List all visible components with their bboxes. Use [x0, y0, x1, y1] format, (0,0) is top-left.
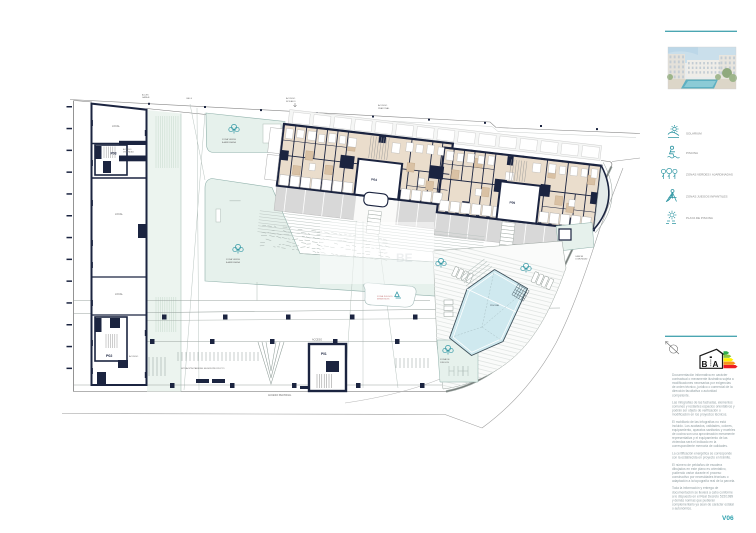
svg-text:ACCESO: ACCESO — [286, 97, 296, 100]
svg-text:ZONA VERDE: ZONA VERDE — [222, 138, 237, 141]
svg-text:ACCESO: ACCESO — [378, 104, 388, 107]
svg-text:modificación en los proyectos: modificación en los proyectos técnicos. — [672, 413, 727, 417]
svg-text:SOLARIUM: SOLARIUM — [686, 132, 702, 136]
svg-text:GARAJE: GARAJE — [142, 96, 150, 99]
svg-text:RODADO: RODADO — [286, 100, 296, 103]
svg-text:P02: P02 — [106, 354, 112, 358]
svg-text:ACCESO: ACCESO — [312, 339, 322, 342]
svg-text:adaptación a la topografía rea: adaptación a la topografía real de la pa… — [672, 479, 735, 483]
svg-text:PISCINA: PISCINA — [490, 304, 499, 307]
svg-text:INFANTILES: INFANTILES — [377, 298, 390, 301]
svg-text:AJARDINADA: AJARDINADA — [222, 141, 236, 144]
svg-text:ACCESO: ACCESO — [123, 148, 132, 151]
svg-text:PISCINA: PISCINA — [686, 151, 698, 155]
svg-text:P05: P05 — [509, 200, 515, 205]
svg-text:PLAYA DE PISCINA: PLAYA DE PISCINA — [686, 216, 713, 220]
svg-text:CALLE: CALLE — [186, 97, 193, 100]
svg-text:correspondiente memoria de cal: correspondiente memoria de calidades. — [672, 444, 728, 448]
svg-text:o autonómico.: o autonómico. — [672, 507, 692, 511]
svg-text:JUEGOS: JUEGOS — [440, 362, 450, 364]
svg-text:ZONAS VERDES I AJARDINADAS: ZONAS VERDES I AJARDINADAS — [686, 173, 733, 177]
svg-text:P03: P03 — [111, 152, 117, 156]
svg-text:ZONAS JUEGOS INFANTILES: ZONAS JUEGOS INFANTILES — [686, 195, 728, 199]
svg-text:V06: V06 — [722, 515, 734, 522]
svg-text:ZONA JUEGOS: ZONA JUEGOS — [377, 295, 393, 298]
svg-text:competente.: competente. — [672, 393, 690, 397]
svg-text:AJARDINADA: AJARDINADA — [226, 261, 240, 264]
svg-text:ZONA VERDE: ZONA VERDE — [226, 258, 241, 261]
svg-text:SITUACIÓN PARKING SEGÚN PROYEC: SITUACIÓN PARKING SEGÚN PROYECTO — [181, 367, 225, 370]
svg-text:ACCESO PEATONAL: ACCESO PEATONAL — [268, 394, 292, 397]
svg-text:P04: P04 — [371, 177, 377, 182]
svg-text:B: B — [702, 360, 708, 369]
svg-text:LOCAL: LOCAL — [115, 213, 124, 216]
svg-text:COMUNIDAD: COMUNIDAD — [575, 258, 588, 261]
svg-text:ACCESO: ACCESO — [129, 355, 139, 358]
svg-text:PEATONAL: PEATONAL — [378, 107, 390, 110]
svg-text:A: A — [713, 360, 719, 369]
svg-text:P01: P01 — [321, 352, 327, 356]
svg-text:VIVIENDAS: VIVIENDAS — [123, 151, 134, 154]
svg-text:LOCAL: LOCAL — [115, 293, 124, 296]
svg-text:con la establecida en proyecto: con la establecida en proyecto en trámit… — [672, 456, 731, 460]
svg-text:LOCAL: LOCAL — [112, 125, 121, 128]
svg-text:BE: BE — [396, 251, 413, 265]
svg-text:ZONA DE: ZONA DE — [440, 358, 450, 361]
